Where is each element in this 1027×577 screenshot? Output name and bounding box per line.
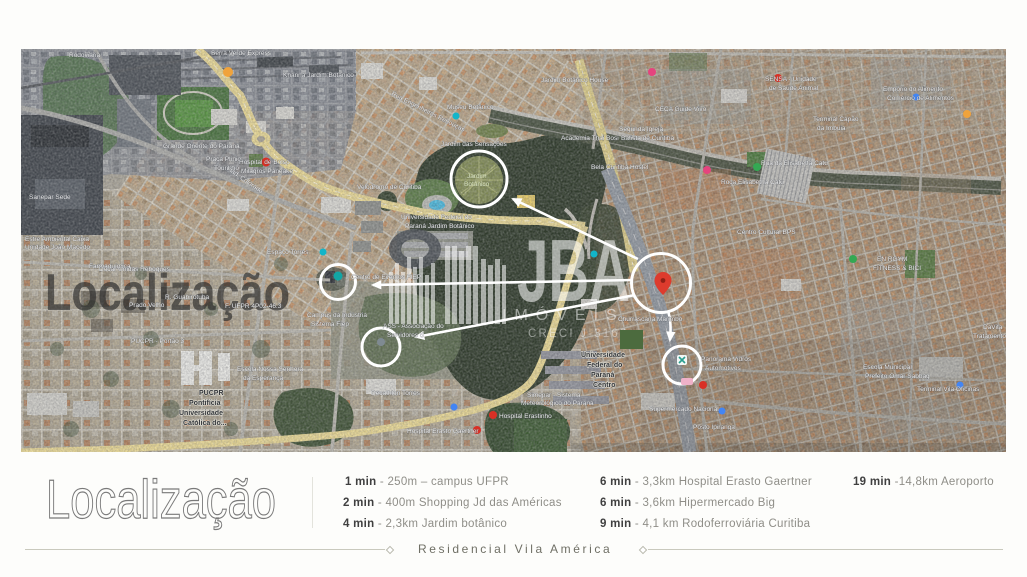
svg-text:FITNESS & BICI: FITNESS & BICI <box>873 265 921 272</box>
svg-text:Prado Velho: Prado Velho <box>129 302 165 309</box>
svg-text:ASS - Associação do: ASS - Associação do <box>383 323 444 330</box>
svg-text:CRECI J-3162: CRECI J-3162 <box>528 328 629 340</box>
svg-text:Unidade João Macedo: Unidade João Macedo <box>25 244 90 251</box>
svg-text:Academia Thai Bosi: Academia Thai Bosi <box>561 135 619 142</box>
svg-text:Sanepar Sede: Sanepar Sede <box>29 194 71 201</box>
svg-text:Centro Cultural BPS: Centro Cultural BPS <box>737 229 796 236</box>
svg-text:Servidores d: Servidores d <box>387 332 424 339</box>
svg-text:SENSA - Unidade: SENSA - Unidade <box>765 76 817 83</box>
svg-text:Hospital Erastinho: Hospital Erastinho <box>499 413 552 420</box>
svg-text:Comércio de Alimentos: Comércio de Alimentos <box>887 95 955 102</box>
svg-text:Tratamento R: Tratamento R <box>973 333 1006 340</box>
svg-text:Estre Ambiental Caixa: Estre Ambiental Caixa <box>25 236 89 243</box>
svg-text:Automotivos: Automotivos <box>705 365 742 372</box>
svg-text:de Saúde Animal: de Saúde Animal <box>769 85 819 92</box>
svg-text:Localização: Localização <box>46 468 276 530</box>
svg-text:Serra Verde Express: Serra Verde Express <box>211 50 272 57</box>
svg-text:Centro: Centro <box>593 382 616 389</box>
svg-text:Escola Municipal: Escola Municipal <box>863 364 912 371</box>
svg-text:da Esperança: da Esperança <box>243 375 283 382</box>
svg-text:Posto Ipiranga: Posto Ipiranga <box>693 424 735 431</box>
svg-text:Panorama Vidros: Panorama Vidros <box>701 356 752 363</box>
svg-text:Rodoviária: Rodoviária <box>69 52 100 59</box>
svg-text:Terminal Capão: Terminal Capão <box>813 116 859 123</box>
svg-text:Docar Unidas Reboques: Docar Unidas Reboques <box>99 266 171 273</box>
svg-text:Sistema Fiep: Sistema Fiep <box>311 321 349 328</box>
svg-text:Jardim das Sensações: Jardim das Sensações <box>441 141 508 148</box>
svg-text:Velódromo de Curitiba: Velódromo de Curitiba <box>357 184 422 191</box>
svg-text:EN RGYM: EN RGYM <box>877 256 907 263</box>
svg-text:Universidade: Universidade <box>179 410 223 417</box>
svg-text:Batista de Curitiba: Batista de Curitiba <box>621 135 674 142</box>
svg-text:PUCPR: PUCPR <box>199 390 224 397</box>
svg-text:Paraná: Paraná <box>591 372 614 379</box>
svg-text:Grande Oriente do Paraná: Grande Oriente do Paraná <box>163 143 240 150</box>
svg-text:Jardim: Jardim <box>467 173 487 180</box>
svg-text:CECA Guide Vivo: CECA Guide Vivo <box>655 106 707 113</box>
svg-text:Rua da Elisabetta Catu: Rua da Elisabetta Catu <box>761 160 828 167</box>
svg-text:Terminal Vila Oficinas: Terminal Vila Oficinas <box>917 386 980 393</box>
svg-text:Espaço Torres: Espaço Torres <box>267 249 309 256</box>
svg-text:Decathlon Torres: Decathlon Torres <box>371 390 421 397</box>
svg-text:Botânico: Botânico <box>464 181 490 188</box>
svg-text:Católica do...: Católica do... <box>183 420 227 427</box>
svg-text:DaVita: DaVita <box>983 324 1003 331</box>
svg-text:Hospital Erasto Gaertner: Hospital Erasto Gaertner <box>407 428 479 435</box>
svg-text:Escola Nossa Senhora: Escola Nossa Senhora <box>237 366 304 373</box>
svg-text:Campus da Indústria: Campus da Indústria <box>307 312 367 319</box>
svg-text:Supermercado Nacional: Supermercado Nacional <box>649 406 719 413</box>
svg-text:Praça Plínio: Praça Plínio <box>206 156 241 163</box>
svg-text:Roça Elisabetha Catu: Roça Elisabetha Catu <box>721 179 784 186</box>
svg-text:PUCPR - Portão 3: PUCPR - Portão 3 <box>131 338 184 345</box>
svg-text:Meteorológico do Paraná: Meteorológico do Paraná <box>521 400 594 407</box>
svg-text:R. Guabirotuba: R. Guabirotuba <box>165 294 209 301</box>
svg-text:Pontifícia: Pontifícia <box>189 400 221 407</box>
svg-text:Empório do Alimento: Empório do Alimento <box>883 86 943 93</box>
svg-text:Universidade: Universidade <box>581 352 625 359</box>
svg-text:Jardim Botânico House: Jardim Botânico House <box>541 77 609 84</box>
svg-text:Prefeito Omar Sabbag: Prefeito Omar Sabbag <box>865 373 930 380</box>
svg-text:da Imbuia: da Imbuia <box>817 125 846 132</box>
svg-text:Segunda Igreja: Segunda Igreja <box>619 126 663 133</box>
svg-text:Milagros Paneake: Milagros Paneake <box>241 168 293 175</box>
svg-text:JBA: JBA <box>517 221 630 320</box>
svg-text:Universidade Federal do: Universidade Federal do <box>401 214 472 221</box>
svg-text:Federal do: Federal do <box>587 362 622 369</box>
svg-text:Bela Curitiba Hostel: Bela Curitiba Hostel <box>591 164 649 171</box>
svg-text:Churrascana Marimbó: Churrascana Marimbó <box>618 316 683 323</box>
svg-text:Museu Botânico: Museu Botânico <box>447 104 494 111</box>
svg-text:Paraná Jardim Botânico: Paraná Jardim Botânico <box>405 223 475 230</box>
svg-text:Hospital de Bolso: Hospital de Bolso <box>239 159 290 166</box>
svg-text:Simepar - Sistema: Simepar - Sistema <box>527 392 581 399</box>
svg-text:F. UFPR 4P02-46.3: F. UFPR 4P02-46.3 <box>225 303 282 310</box>
svg-text:Khanna Jardim Botânico: Khanna Jardim Botânico <box>283 72 354 79</box>
svg-text:Centro de Eventos FIEP: Centro de Eventos FIEP <box>351 274 421 281</box>
